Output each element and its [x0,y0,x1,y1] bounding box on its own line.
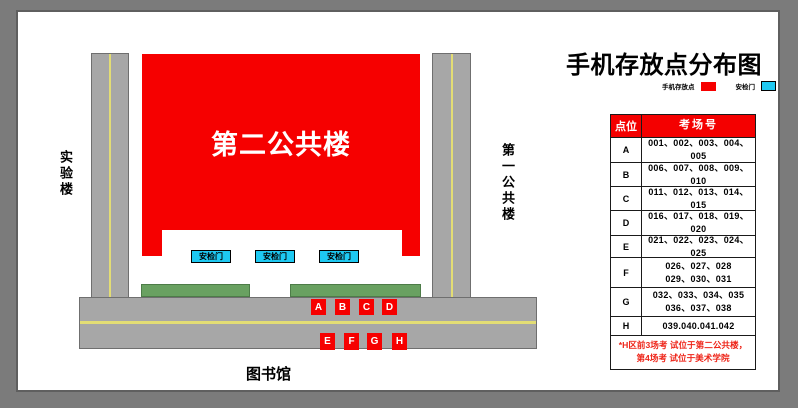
rooms-cell: 032、033、034、035 036、037、038 [642,288,755,316]
building-lab-label: 实验楼 [56,150,75,198]
road-lane-marking [80,321,536,324]
building-second-public: 第二公共楼 [142,54,420,230]
building-first-public-label: 第一公共楼 [498,143,517,223]
point-cell: B [611,163,642,186]
table-row: D 016、017、018、019、020 [611,211,755,236]
table-row: B 006、007、008、009、010 [611,163,755,187]
point-cell: F [611,258,642,287]
hedge-left [141,284,250,297]
building-second-public-label: 第二公共楼 [142,54,420,230]
building-left-wing [142,229,162,256]
storage-point-c: C [359,299,374,315]
page-title: 手机存放点分布图 [566,45,778,80]
table-footnote: *H区前3场考 试位于第二公共楼， 第4场考 试位于美术学院 [611,336,755,369]
rooms-cell: 039.040.041.042 [642,317,755,335]
table-header-row: 点位 考场号 [611,115,755,138]
legend-storage-label: 手机存放点 [662,81,695,91]
rooms-cell: 011、012、013、014、015 [642,187,755,210]
phone-storage-map-page: { "title": "手机存放点分布图", "legend": { "item… [0,0,798,408]
storage-point-f: F [344,333,359,350]
security-gate-1: 安检门 [191,250,231,263]
legend: 手机存放点 安检门 [638,81,776,91]
storage-point-d: D [382,299,397,315]
point-cell: A [611,138,642,162]
road-left-vertical [91,53,129,298]
storage-point-h: H [392,333,407,350]
security-gate-2: 安检门 [255,250,295,263]
point-cell: E [611,236,642,257]
rooms-cell: 026、027、028 029、030、031 [642,258,755,287]
point-cell: C [611,187,642,210]
road-right-vertical [432,53,471,298]
hedge-right [290,284,421,297]
road-bottom-horizontal [79,297,537,349]
point-cell: H [611,317,642,335]
table-row: F 026、027、028 029、030、031 [611,258,755,288]
building-right-wing [402,229,420,256]
table-row: H 039.040.041.042 [611,317,755,336]
legend-gate-swatch [761,81,776,91]
legend-storage-swatch [701,82,716,91]
table-header-point: 点位 [611,115,642,137]
point-cell: G [611,288,642,316]
rooms-cell: 001、002、003、004、005 [642,138,755,162]
legend-gate-label: 安检门 [736,81,756,91]
table-row: A 001、002、003、004、005 [611,138,755,163]
storage-point-b: B [335,299,350,315]
exam-room-table: 点位 考场号 A 001、002、003、004、005 B 006、007、0… [610,114,756,370]
table-header-rooms: 考场号 [642,115,755,137]
building-library-label: 图书馆 [246,363,291,384]
storage-point-g: G [367,333,382,350]
table-row: E 021、022、023、024、025 [611,236,755,258]
table-row: G 032、033、034、035 036、037、038 [611,288,755,317]
map-panel: 第二公共楼 安检门 安检门 安检门 A B C D E F G H 实验楼 第一… [16,10,780,392]
rooms-cell: 016、017、018、019、020 [642,211,755,235]
road-lane-marking [109,54,111,297]
table-row: C 011、012、013、014、015 [611,187,755,211]
point-cell: D [611,211,642,235]
table-footnote-row: *H区前3场考 试位于第二公共楼， 第4场考 试位于美术学院 [611,336,755,369]
rooms-cell: 021、022、023、024、025 [642,236,755,257]
storage-point-a: A [311,299,326,315]
rooms-cell: 006、007、008、009、010 [642,163,755,186]
road-lane-marking [451,54,453,297]
security-gate-3: 安检门 [319,250,359,263]
storage-point-e: E [320,333,335,350]
